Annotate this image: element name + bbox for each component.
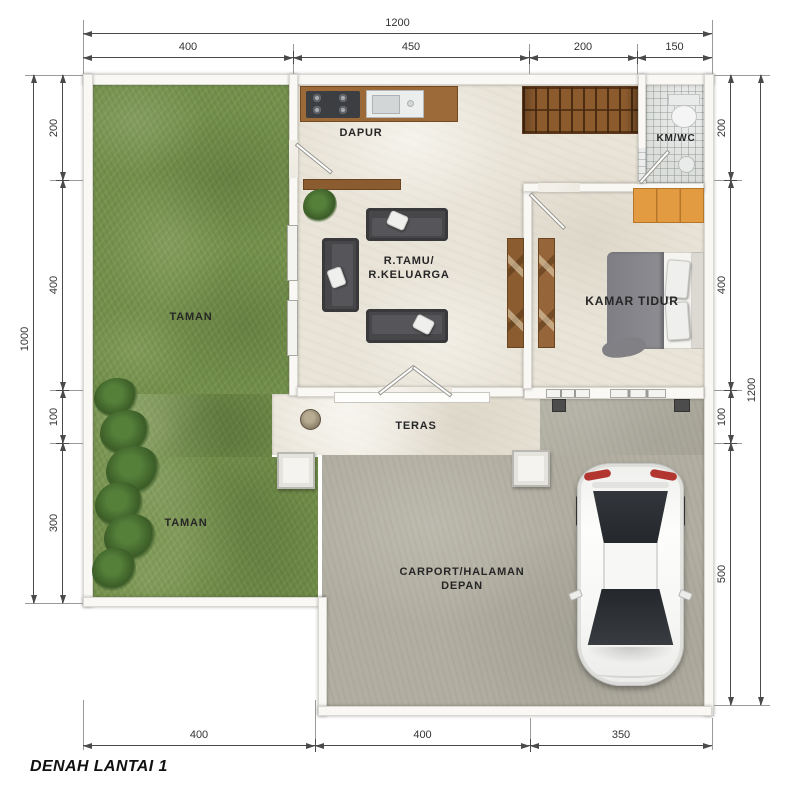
stepping-stone [300, 409, 321, 430]
dim-left-seg-2: 400 [62, 180, 63, 390]
bed-pillow-1 [664, 259, 690, 299]
wall-left [83, 74, 93, 607]
stove [306, 91, 360, 118]
wardrobe-bedroom-side [538, 238, 555, 348]
dim-tick [56, 390, 69, 391]
pillar-right [512, 450, 550, 487]
dim-label: 200 [48, 118, 60, 136]
dim-left-seg-1: 200 [62, 75, 63, 180]
label-rtamu-line1: R.TAMU/ [384, 255, 435, 267]
dim-left-seg-3: 100 [62, 390, 63, 443]
garden-wall-window-2 [287, 300, 298, 356]
dim-label: 200 [574, 41, 592, 53]
stairs [522, 86, 640, 134]
dim-tick [724, 443, 737, 444]
dim-label: 200 [716, 118, 728, 136]
dim-left-seg-4: 300 [62, 443, 63, 603]
dim-bottom-seg-1: 400 [83, 745, 315, 746]
wall-living-bedroom [523, 190, 532, 389]
dim-label: 500 [716, 565, 728, 583]
dim-top-seg-4: 150 [637, 57, 712, 58]
dim-right-seg-1: 200 [730, 75, 731, 180]
dim-top-seg-3: 200 [529, 57, 637, 58]
bed-headboard [690, 252, 704, 349]
dim-label: 450 [402, 41, 420, 53]
dim-bottom-seg-2: 400 [315, 745, 530, 746]
label-teras: TERAS [395, 420, 436, 432]
wall-garden-bottom [83, 597, 326, 607]
dim-right-total: 1200 [760, 75, 761, 705]
dim-label: 400 [48, 276, 60, 294]
dim-label: 150 [665, 41, 683, 53]
dim-label: 350 [612, 729, 630, 741]
dim-top-seg-1: 400 [83, 57, 293, 58]
dim-tick [724, 180, 737, 181]
dresser [633, 188, 704, 223]
bedroom-window-2 [610, 389, 666, 398]
label-taman-lower: TAMAN [165, 517, 208, 529]
dim-right-seg-3: 100 [730, 390, 731, 443]
label-carport-line1: CARPORT/HALAMAN [399, 566, 524, 578]
dim-label: 400 [179, 41, 197, 53]
dim-label: 300 [48, 514, 60, 532]
bedroom-window-1 [546, 389, 590, 398]
pillar-left [277, 452, 315, 489]
label-kamar-tidur: KAMAR TIDUR [585, 294, 678, 308]
dim-tick [56, 443, 69, 444]
dim-label: 400 [413, 729, 431, 741]
cabinet-living-side [507, 238, 524, 348]
wall-carport-left [318, 597, 327, 716]
ext-line [712, 20, 713, 74]
wall-carport-bottom [318, 706, 712, 716]
garden-wall-window-1 [287, 225, 298, 281]
sofa-top [366, 208, 448, 241]
plan-title: DENAH LANTAI 1 [30, 758, 168, 776]
label-taman-upper: TAMAN [170, 311, 213, 323]
dim-tick [293, 51, 294, 64]
car-roof [603, 543, 658, 589]
dim-left-total: 1000 [33, 75, 34, 603]
car [577, 463, 684, 686]
dim-tick [56, 180, 69, 181]
dim-top-seg-2: 450 [293, 57, 529, 58]
wall-right [704, 74, 714, 716]
garden-bush-6 [92, 548, 136, 592]
dim-tick [724, 390, 737, 391]
floor-plan-canvas: DAPUR KM/WC R.TAMU/ R.KELUARGA KAMAR TID… [0, 0, 804, 804]
dim-tick [530, 739, 531, 752]
dim-label: 1200 [746, 378, 758, 402]
dim-right-seg-4: 500 [730, 443, 731, 705]
ext-line [712, 718, 713, 750]
dim-label: 400 [190, 729, 208, 741]
car-trunk-line [592, 482, 669, 488]
door-gap-bedroom [538, 183, 580, 192]
garden-upper-area [93, 84, 289, 394]
dim-tick [315, 739, 316, 752]
car-bumper-line [594, 669, 667, 678]
dim-label: 100 [48, 407, 60, 425]
label-carport-line2: DEPAN [441, 580, 483, 592]
dim-tick [637, 51, 638, 64]
wall-top [83, 74, 714, 85]
dim-label: 1200 [385, 17, 409, 29]
dim-label: 400 [716, 276, 728, 294]
label-rtamu-line2: R.KELUARGA [368, 269, 449, 281]
dim-bottom-seg-3: 350 [530, 745, 712, 746]
dim-right-seg-2: 400 [730, 180, 731, 390]
dim-top-total: 1200 [83, 33, 712, 34]
terrace-threshold [334, 392, 490, 403]
sofa-bottom [366, 309, 448, 343]
bathroom-sink [678, 156, 695, 173]
window-post-1 [552, 399, 566, 412]
window-post-2 [674, 399, 690, 412]
label-dapur: DAPUR [339, 127, 382, 139]
ext-line [83, 20, 84, 74]
kitchen-sink [366, 90, 424, 118]
toilet [666, 94, 702, 130]
dim-tick [529, 51, 530, 64]
dim-label: 1000 [19, 327, 31, 351]
dim-label: 100 [716, 407, 728, 425]
label-km-wc: KM/WC [657, 133, 696, 144]
plant-pot [303, 189, 337, 223]
